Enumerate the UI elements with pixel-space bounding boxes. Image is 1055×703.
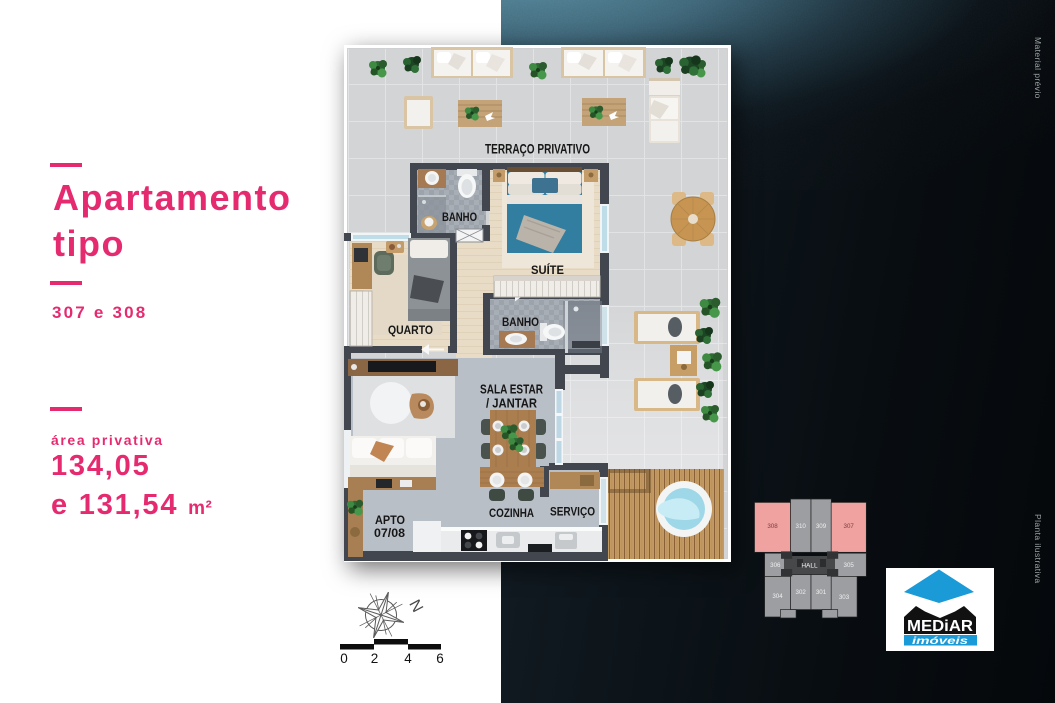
svg-text:APTO: APTO: [375, 513, 405, 527]
svg-text:/ JANTAR: / JANTAR: [486, 397, 537, 411]
svg-text:COZINHA: COZINHA: [489, 506, 534, 520]
svg-text:2: 2: [371, 651, 379, 666]
svg-text:SUÍTE: SUÍTE: [531, 262, 564, 277]
svg-text:308: 308: [767, 523, 778, 530]
svg-text:302: 302: [796, 589, 807, 596]
svg-text:BANHO: BANHO: [502, 315, 539, 329]
svg-text:SALA ESTAR: SALA ESTAR: [480, 383, 543, 397]
svg-text:305: 305: [844, 562, 855, 569]
svg-text:07/08: 07/08: [374, 526, 405, 540]
svg-text:SERVIÇO: SERVIÇO: [550, 505, 595, 519]
svg-text:309: 309: [816, 523, 827, 530]
svg-text:310: 310: [796, 523, 807, 530]
svg-text:QUARTO: QUARTO: [388, 323, 433, 337]
svg-text:0: 0: [340, 651, 348, 666]
svg-text:BANHO: BANHO: [442, 210, 477, 224]
svg-text:307: 307: [844, 523, 855, 530]
svg-text:301: 301: [816, 589, 827, 596]
svg-text:N: N: [405, 597, 425, 615]
svg-text:MEDiAR: MEDiAR: [907, 618, 973, 635]
svg-text:306: 306: [770, 562, 781, 569]
svg-text:4: 4: [404, 651, 412, 666]
svg-text:imóveis: imóveis: [912, 636, 969, 647]
svg-text:303: 303: [839, 594, 850, 601]
svg-text:6: 6: [436, 651, 444, 666]
svg-text:HALL: HALL: [801, 563, 818, 570]
svg-text:TERRAÇO PRIVATIVO: TERRAÇO PRIVATIVO: [485, 142, 590, 157]
svg-text:304: 304: [772, 593, 783, 600]
